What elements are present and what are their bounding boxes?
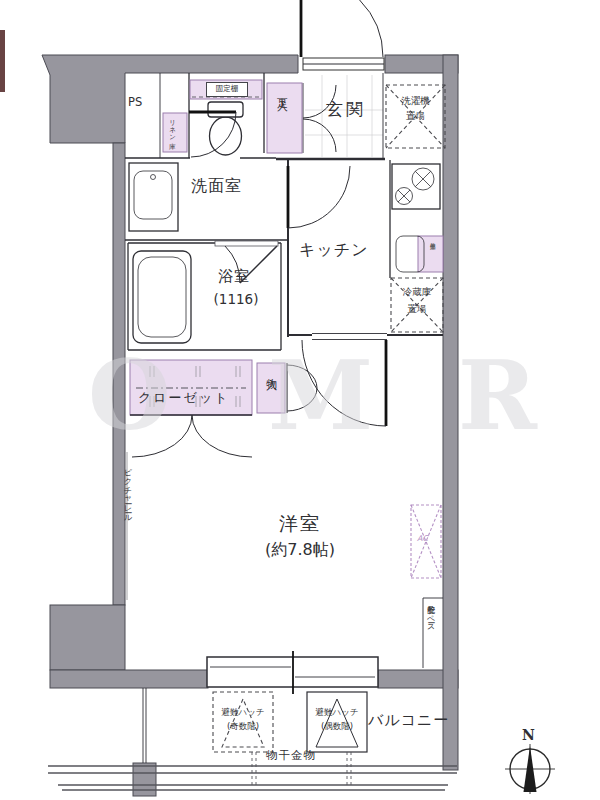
balcony-railing	[48, 766, 457, 790]
label-pipe-space: 配管スペース	[426, 600, 435, 666]
label-hatch-even: (偶数階)	[307, 722, 367, 732]
label-washroom: 洗面室	[191, 177, 242, 195]
label-overhead-shelf: 上部吊棚	[430, 239, 436, 271]
toilet-bowl	[210, 117, 242, 155]
label-bathroom: 浴室	[218, 268, 250, 285]
label-hatch-odd: 避難ハッチ	[213, 708, 273, 718]
label-bathroom-size: (1116)	[203, 292, 269, 308]
floor-plan: O M R PS 固定棚 リネン庫 下足入 玄関 洗濯機 置場 洗面室 キッチン…	[0, 0, 600, 800]
label-washing-machine: 洗濯機	[386, 96, 445, 107]
label-entrance: 玄関	[326, 100, 366, 120]
label-kitchen: キッチン	[299, 241, 369, 259]
label-main-room: 洋室	[255, 513, 345, 535]
closet-area	[130, 360, 252, 457]
label-fridge: 冷蔵庫	[391, 287, 443, 298]
label-laundry-hardware: 物干金物	[249, 749, 333, 762]
label-storage: 物入	[264, 369, 277, 409]
label-closet: クローゼット	[138, 391, 230, 406]
balcony-area	[48, 688, 457, 790]
label-hatch-even: 避難ハッチ	[307, 708, 367, 718]
label-fixed-shelf: 固定棚	[206, 82, 248, 97]
toilet-tank	[208, 102, 243, 117]
label-hatch-odd: (奇数階)	[213, 722, 273, 732]
washroom-door	[288, 166, 350, 228]
label-main-room-size: (約7.8帖)	[230, 541, 370, 559]
entrance-door	[301, 0, 384, 70]
floor-plan-drawing	[0, 0, 600, 800]
label-balcony: バルコニー	[368, 712, 449, 729]
main-room-door	[302, 340, 386, 426]
scan-artifact	[0, 30, 5, 92]
bathtub	[133, 251, 191, 343]
vanity-sink	[129, 163, 178, 231]
label-washing-machine: 置場	[386, 111, 445, 122]
label-ac: AC	[417, 534, 428, 543]
label-fridge: 置場	[391, 304, 443, 315]
label-pipe-shaft: PS	[128, 96, 142, 109]
compass-north-label: N	[522, 727, 535, 743]
label-shoe-box: 下足入	[277, 90, 289, 148]
balcony-window	[207, 651, 378, 694]
label-picture-rail: ピクチャーレール	[123, 463, 132, 569]
compass	[505, 744, 555, 794]
bathroom-door-sill	[215, 241, 278, 246]
label-linen-closet: リネン庫	[168, 115, 175, 151]
